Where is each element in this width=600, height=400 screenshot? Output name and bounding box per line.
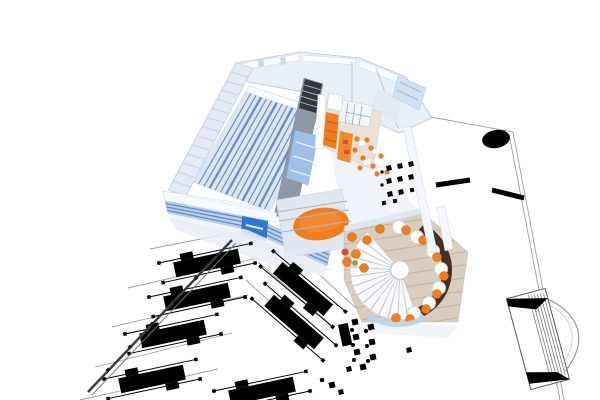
chair-plan-symbol (366, 359, 370, 363)
appliance (327, 93, 343, 111)
red-product (344, 150, 349, 154)
orange-stool (422, 305, 431, 314)
table-plan-symbol (380, 183, 384, 187)
orange-stool (343, 258, 352, 267)
red-chair (342, 249, 349, 256)
orange-stool (348, 233, 357, 242)
table-plan-symbol (386, 165, 392, 171)
table-plan-symbol (353, 348, 360, 355)
table-plan-symbol (380, 170, 384, 174)
table-plan-symbol (386, 178, 392, 184)
orange-stool (433, 290, 442, 299)
table-plan-symbol (398, 189, 404, 195)
dining-chair (378, 153, 383, 158)
orange-stool (363, 236, 372, 245)
dining-chair (357, 165, 362, 170)
table-plan-symbol (352, 333, 359, 340)
door-slot (258, 59, 264, 67)
table-plan-symbol (346, 366, 352, 372)
red-product (343, 140, 348, 144)
table-plan-symbol (410, 188, 415, 193)
table-plan-symbol (406, 347, 412, 353)
orange-stool (392, 314, 401, 323)
table-plan-symbol (328, 381, 335, 388)
orange-stool (440, 272, 449, 281)
table-plan-symbol (369, 353, 376, 360)
orange-stool (402, 226, 411, 235)
chair-plan-symbol (350, 328, 354, 332)
table-plan-symbol (368, 338, 375, 345)
dining-chair (374, 171, 379, 176)
dining-chair (370, 163, 375, 168)
orange-stool (352, 250, 361, 259)
table-plan-symbol (359, 363, 366, 370)
table-plan-symbol (351, 318, 358, 325)
table-plan-symbol (338, 389, 344, 395)
dining-chair (368, 145, 373, 150)
render-canvas (0, 0, 600, 400)
orange-stool (376, 225, 385, 234)
dining-chair (364, 137, 369, 142)
table-plan-symbol (320, 378, 325, 383)
floorplan-3d-render (0, 0, 600, 400)
door-slot (280, 57, 286, 65)
table-plan-symbol (408, 161, 414, 167)
orange-stool (433, 253, 442, 262)
orange-stool (360, 264, 369, 273)
table-plan-symbol (397, 163, 403, 169)
dining-chair (360, 155, 365, 160)
table-plan-symbol (393, 199, 398, 204)
plant (352, 260, 358, 266)
table-plan-symbol (387, 191, 393, 197)
stair-landing (391, 261, 409, 279)
table-plan-symbol (382, 201, 387, 206)
chair-plan-symbol (352, 358, 356, 362)
table-plan-symbol (397, 176, 403, 182)
dining-chair (354, 136, 359, 141)
chair-plan-symbol (364, 329, 368, 333)
dining-chair (352, 147, 357, 152)
table-plan-symbol (367, 323, 374, 330)
chair-plan-symbol (351, 343, 355, 347)
table-plan-symbol (408, 174, 414, 180)
chair-plan-symbol (365, 344, 369, 348)
